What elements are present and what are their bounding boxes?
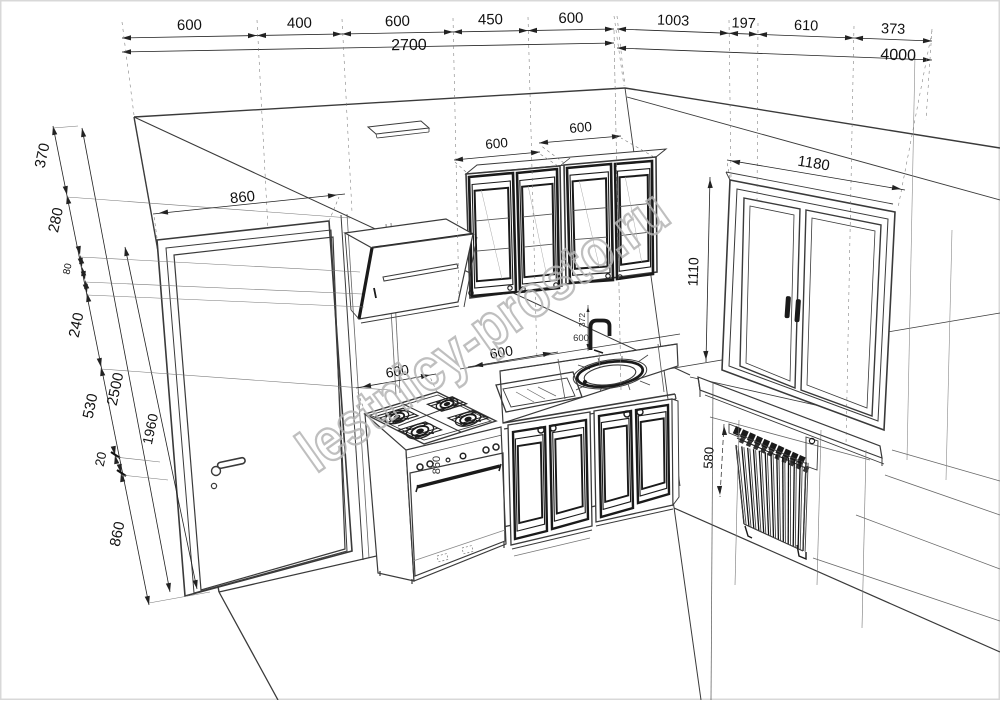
svg-text:450: 450: [478, 11, 503, 28]
svg-text:1110: 1110: [685, 257, 702, 287]
svg-text:600: 600: [485, 135, 509, 152]
svg-text:580: 580: [700, 447, 716, 469]
svg-text:20: 20: [92, 450, 110, 467]
svg-text:400: 400: [287, 15, 312, 32]
svg-text:600: 600: [177, 17, 202, 34]
svg-text:860: 860: [229, 188, 256, 208]
svg-text:1003: 1003: [657, 13, 690, 30]
svg-text:600: 600: [558, 10, 583, 27]
svg-text:2700: 2700: [391, 37, 427, 55]
svg-text:372: 372: [577, 313, 587, 327]
svg-text:600: 600: [385, 13, 410, 30]
svg-text:197: 197: [731, 15, 756, 32]
svg-text:610: 610: [794, 18, 819, 35]
svg-text:4000: 4000: [880, 46, 916, 64]
svg-text:600: 600: [569, 119, 593, 136]
svg-text:373: 373: [881, 21, 906, 38]
svg-text:860: 860: [431, 456, 443, 474]
svg-text:600: 600: [573, 333, 589, 344]
